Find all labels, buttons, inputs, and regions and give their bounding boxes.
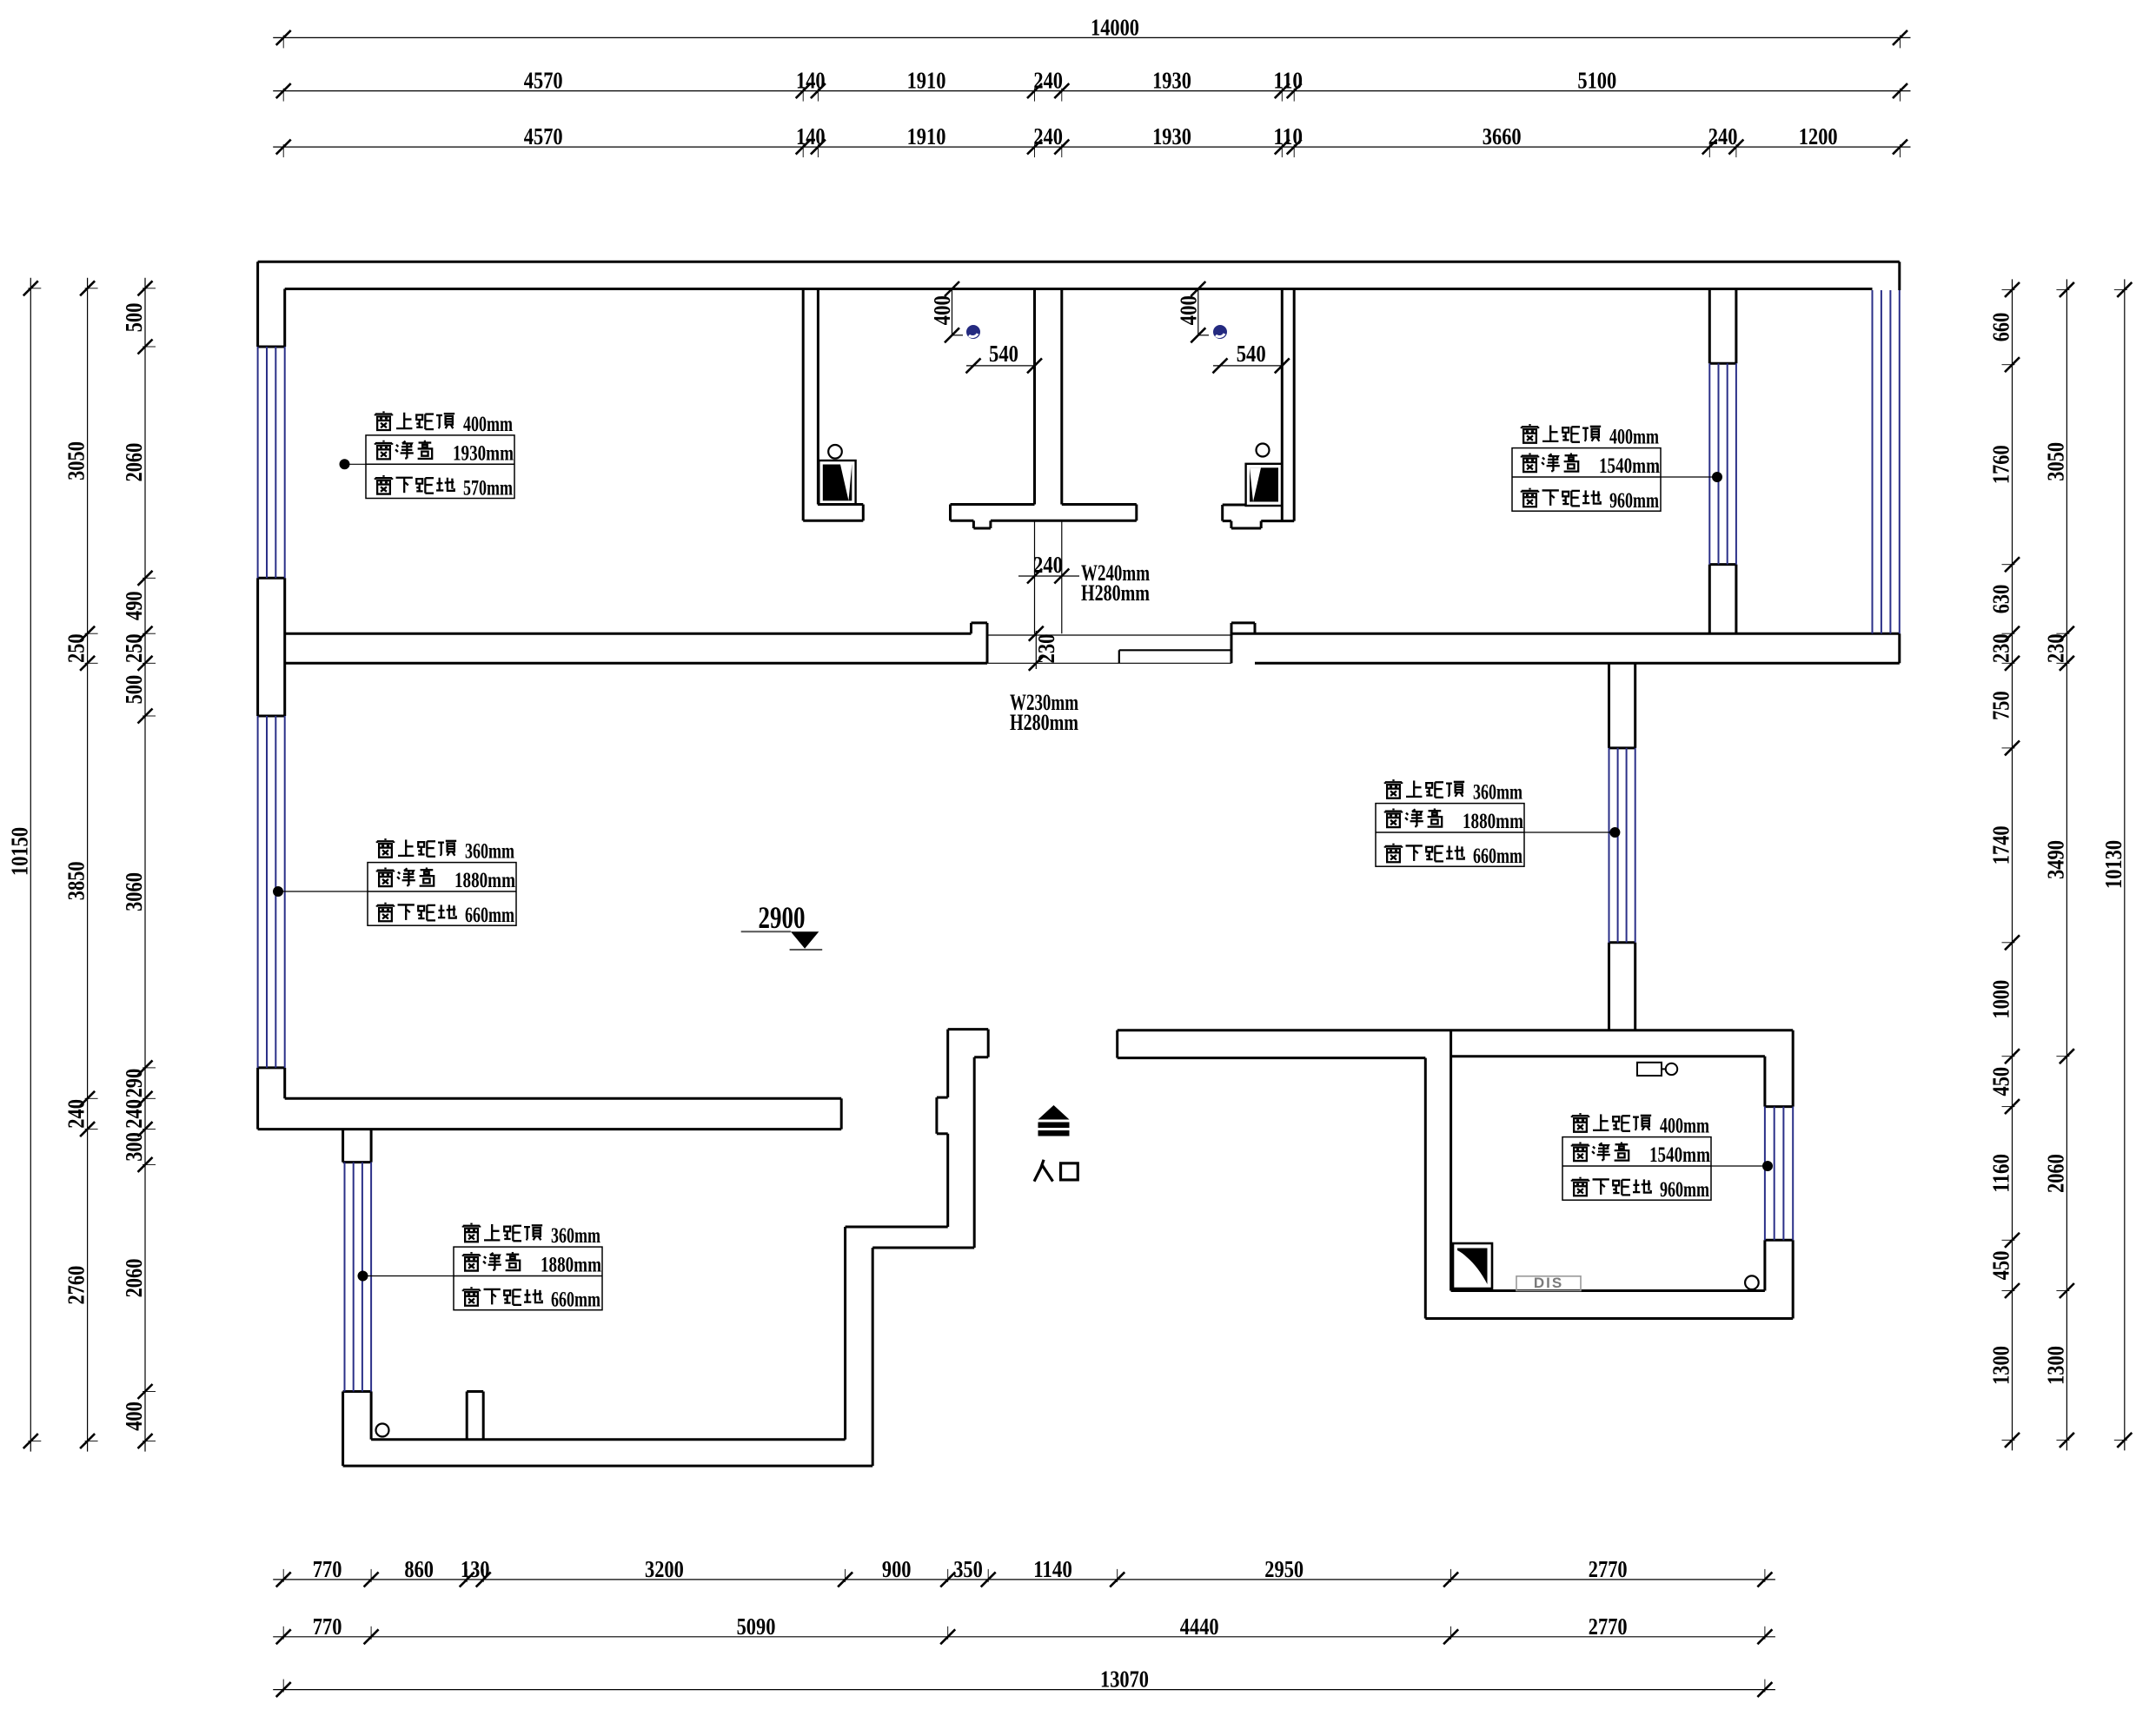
svg-text:1910: 1910 bbox=[907, 123, 946, 149]
svg-text:H280mm: H280mm bbox=[1081, 580, 1150, 606]
svg-text:960mm: 960mm bbox=[1660, 1178, 1709, 1202]
svg-text:2760: 2760 bbox=[63, 1266, 90, 1305]
svg-text:4570: 4570 bbox=[524, 68, 563, 94]
svg-text:1930mm: 1930mm bbox=[453, 441, 514, 465]
svg-text:130: 130 bbox=[461, 1556, 490, 1582]
svg-text:1880mm: 1880mm bbox=[454, 869, 515, 892]
svg-text:240: 240 bbox=[121, 1099, 147, 1129]
svg-text:10150: 10150 bbox=[6, 827, 32, 876]
svg-text:10130: 10130 bbox=[2100, 840, 2126, 889]
svg-text:5100: 5100 bbox=[1577, 68, 1616, 94]
svg-text:5090: 5090 bbox=[737, 1613, 776, 1640]
svg-text:3050: 3050 bbox=[63, 441, 90, 480]
svg-text:400mm: 400mm bbox=[1660, 1115, 1709, 1138]
svg-text:H280mm: H280mm bbox=[1010, 710, 1078, 735]
svg-text:140: 140 bbox=[796, 123, 826, 149]
svg-text:2770: 2770 bbox=[1589, 1556, 1628, 1582]
svg-text:1930: 1930 bbox=[1152, 123, 1191, 149]
svg-text:500: 500 bbox=[121, 675, 147, 705]
svg-text:400mm: 400mm bbox=[463, 413, 513, 436]
svg-text:490: 490 bbox=[121, 591, 147, 620]
svg-text:3200: 3200 bbox=[645, 1556, 684, 1582]
svg-text:13070: 13070 bbox=[1100, 1666, 1149, 1693]
svg-text:300: 300 bbox=[121, 1132, 147, 1162]
svg-text:500: 500 bbox=[121, 303, 147, 333]
svg-text:1540mm: 1540mm bbox=[1599, 454, 1660, 478]
svg-text:2900: 2900 bbox=[759, 900, 806, 935]
svg-text:400: 400 bbox=[929, 295, 955, 325]
svg-text:1140: 1140 bbox=[1033, 1556, 1072, 1582]
svg-text:230: 230 bbox=[2042, 633, 2068, 663]
svg-text:2950: 2950 bbox=[1264, 1556, 1304, 1582]
svg-text:360mm: 360mm bbox=[1473, 781, 1522, 805]
svg-text:240: 240 bbox=[1033, 123, 1063, 149]
svg-text:450: 450 bbox=[1988, 1067, 2014, 1097]
svg-text:540: 540 bbox=[1237, 341, 1266, 367]
svg-text:3050: 3050 bbox=[2042, 442, 2068, 481]
svg-text:1880mm: 1880mm bbox=[1463, 810, 1523, 833]
svg-text:1000: 1000 bbox=[1988, 980, 2014, 1019]
svg-text:1160: 1160 bbox=[1988, 1154, 2014, 1193]
svg-text:750: 750 bbox=[1988, 691, 2014, 720]
svg-text:250: 250 bbox=[63, 633, 90, 663]
svg-text:450: 450 bbox=[1988, 1251, 2014, 1281]
svg-text:250: 250 bbox=[121, 633, 147, 663]
svg-text:570mm: 570mm bbox=[463, 477, 513, 500]
svg-text:400mm: 400mm bbox=[1609, 426, 1659, 449]
svg-text:960mm: 960mm bbox=[1609, 489, 1659, 513]
svg-text:14000: 14000 bbox=[1091, 14, 1139, 40]
svg-text:290: 290 bbox=[121, 1069, 147, 1098]
svg-text:770: 770 bbox=[313, 1613, 342, 1640]
svg-text:540: 540 bbox=[989, 341, 1018, 367]
svg-text:3660: 3660 bbox=[1483, 123, 1522, 149]
svg-text:350: 350 bbox=[953, 1556, 983, 1582]
svg-text:660mm: 660mm bbox=[465, 904, 514, 927]
svg-text:1300: 1300 bbox=[1988, 1346, 2014, 1385]
svg-text:900: 900 bbox=[882, 1556, 912, 1582]
svg-text:360mm: 360mm bbox=[551, 1224, 600, 1248]
svg-text:660mm: 660mm bbox=[551, 1289, 600, 1312]
svg-text:400: 400 bbox=[121, 1401, 147, 1431]
svg-text:240: 240 bbox=[1708, 123, 1738, 149]
svg-text:860: 860 bbox=[404, 1556, 434, 1582]
svg-text:630: 630 bbox=[1988, 585, 2014, 614]
svg-text:660: 660 bbox=[1988, 313, 2014, 342]
svg-text:230: 230 bbox=[1033, 634, 1059, 664]
svg-text:770: 770 bbox=[313, 1556, 342, 1582]
svg-text:110: 110 bbox=[1273, 123, 1303, 149]
svg-text:140: 140 bbox=[796, 68, 826, 94]
svg-text:3060: 3060 bbox=[121, 872, 147, 911]
svg-text:400: 400 bbox=[1176, 295, 1202, 325]
svg-text:240: 240 bbox=[63, 1099, 90, 1129]
svg-text:1200: 1200 bbox=[1799, 123, 1838, 149]
svg-text:230: 230 bbox=[1988, 633, 2014, 663]
svg-text:4570: 4570 bbox=[524, 123, 563, 149]
svg-text:3490: 3490 bbox=[2042, 840, 2068, 879]
svg-text:1910: 1910 bbox=[907, 68, 946, 94]
svg-text:1760: 1760 bbox=[1988, 445, 2014, 484]
svg-text:1930: 1930 bbox=[1152, 68, 1191, 94]
svg-text:DIS: DIS bbox=[1534, 1275, 1563, 1291]
svg-text:240: 240 bbox=[1033, 68, 1063, 94]
svg-text:660mm: 660mm bbox=[1473, 845, 1522, 868]
svg-text:4440: 4440 bbox=[1180, 1613, 1219, 1640]
svg-text:1880mm: 1880mm bbox=[541, 1254, 601, 1277]
svg-text:2060: 2060 bbox=[2042, 1154, 2068, 1193]
svg-text:240: 240 bbox=[1033, 552, 1063, 578]
svg-text:2060: 2060 bbox=[121, 443, 147, 482]
svg-text:110: 110 bbox=[1273, 68, 1303, 94]
svg-text:2770: 2770 bbox=[1589, 1613, 1628, 1640]
svg-text:3850: 3850 bbox=[63, 861, 90, 900]
svg-text:1740: 1740 bbox=[1988, 825, 2014, 865]
svg-text:1540mm: 1540mm bbox=[1649, 1143, 1710, 1167]
svg-text:1300: 1300 bbox=[2042, 1346, 2068, 1385]
svg-text:2060: 2060 bbox=[121, 1259, 147, 1298]
svg-text:360mm: 360mm bbox=[465, 840, 514, 864]
